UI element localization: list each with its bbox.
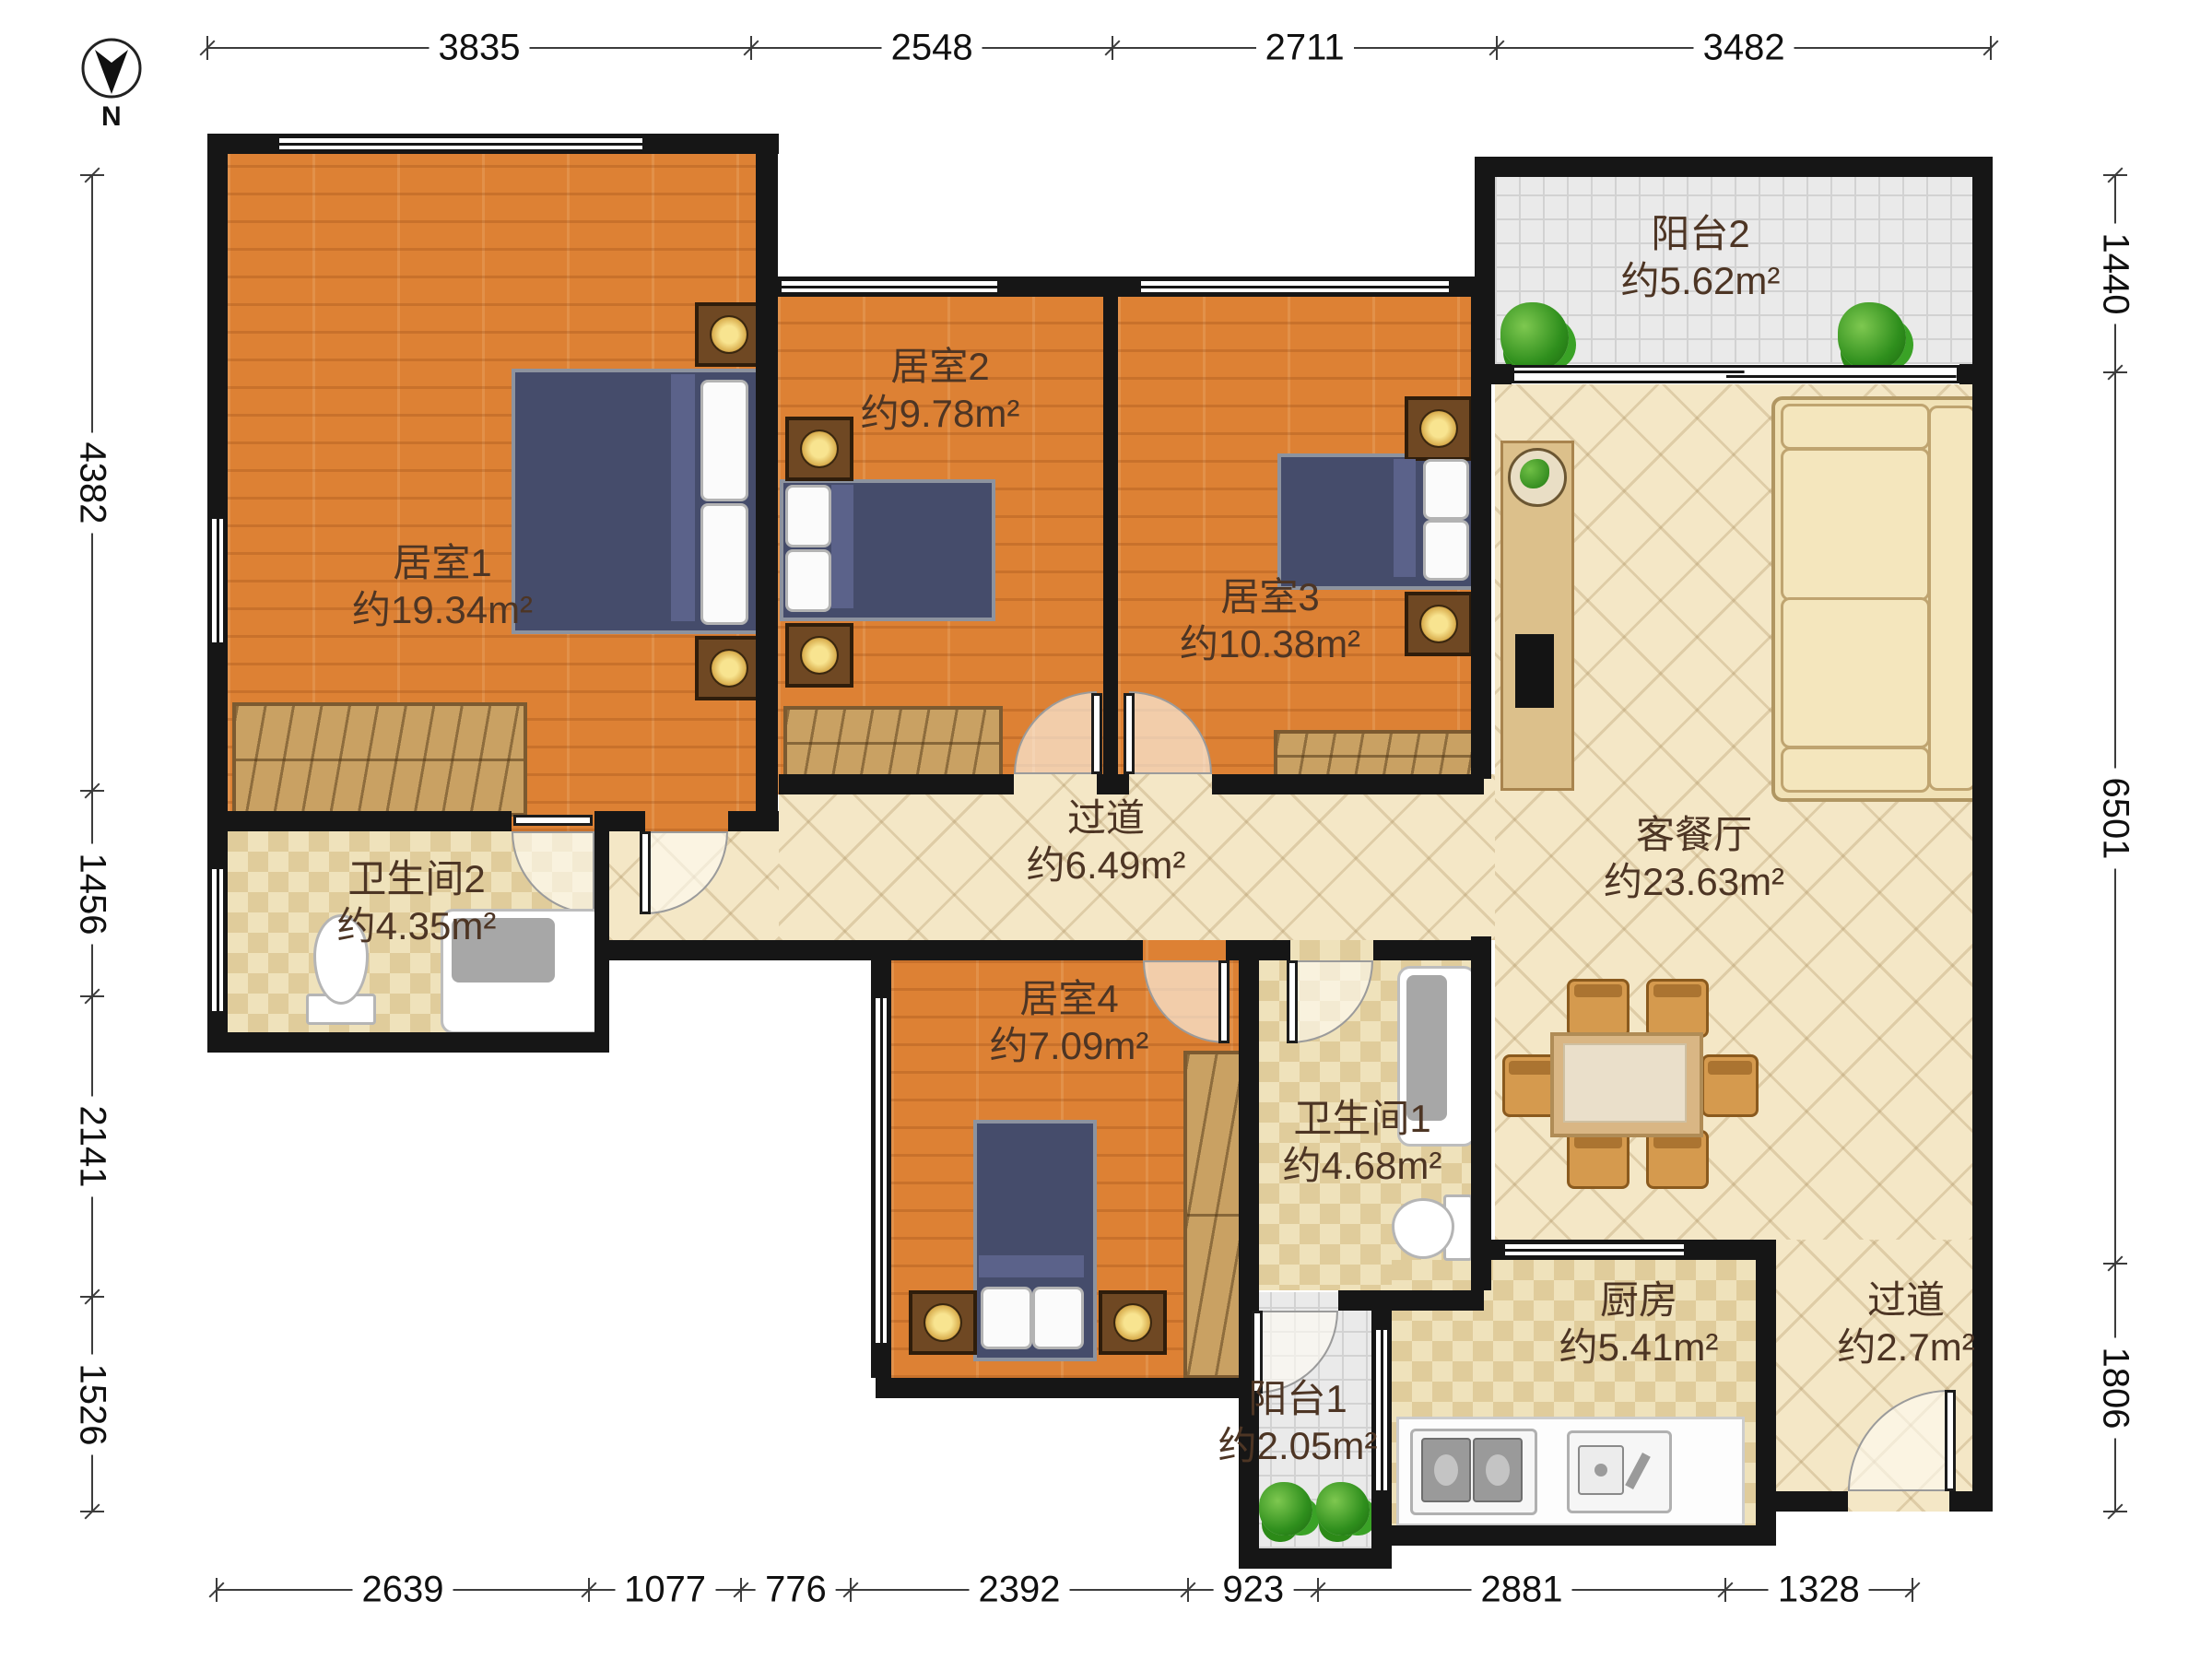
wall — [1972, 157, 1993, 1512]
tv-icon — [1515, 634, 1554, 708]
wall — [1373, 940, 1484, 960]
wall — [756, 134, 778, 831]
bedroom1-bed-fold — [671, 374, 695, 621]
cabinet-plant-icon — [1508, 448, 1567, 507]
bedroom3-pillow — [1423, 459, 1469, 520]
room-label-hallway: 过道 约6.49m² — [1027, 794, 1186, 888]
bedroom4-nightstand-lamp-icon — [909, 1290, 977, 1355]
balcony2-plant-icon — [1500, 302, 1569, 371]
balcony1-plant-icon — [1259, 1482, 1312, 1535]
room-label-bathroom1: 卫生间1 约4.68m² — [1283, 1095, 1442, 1189]
room-area: 约10.38m² — [1180, 620, 1360, 667]
floorplan-canvas: N — [0, 0, 2212, 1659]
bedroom4-pillow — [1032, 1287, 1084, 1349]
bedroom3-bed-fold — [1394, 459, 1416, 577]
room-name: 居室3 — [1180, 573, 1360, 620]
dimension-label: 1440 — [2095, 224, 2136, 324]
bedroom1-door-leaf — [640, 831, 651, 914]
room-area: 约4.35m² — [337, 902, 497, 949]
wall — [1338, 1290, 1484, 1311]
bedroom1-nightstand-lamp-icon — [695, 302, 763, 367]
dimension-label: 2639 — [353, 1570, 453, 1611]
bedroom2-bed-fold — [831, 485, 853, 608]
wall — [594, 811, 645, 831]
room-area: 约23.63m² — [1604, 858, 1784, 905]
bedroom1-window — [276, 135, 645, 152]
kitchen-cooktop-icon — [1578, 1445, 1624, 1495]
dining-chair — [1567, 1130, 1630, 1189]
dimension-label: 1806 — [2095, 1337, 2136, 1438]
dimension-label: 2141 — [72, 1096, 113, 1196]
wall — [1475, 157, 1495, 384]
room-area: 约9.78m² — [861, 390, 1020, 437]
room-label-bathroom2: 卫生间2 约4.35m² — [337, 855, 497, 949]
wall — [1475, 157, 1993, 177]
room-label-balcony2: 阳台2 约5.62m² — [1621, 210, 1781, 304]
bedroom4-nightstand-lamp-icon — [1099, 1290, 1167, 1355]
balcony2-sliding-door — [1512, 365, 1959, 383]
room-label-corridor: 过道 约2.7m² — [1837, 1277, 1974, 1371]
room-name: 卫生间1 — [1283, 1095, 1442, 1142]
room-area: 约2.7m² — [1837, 1324, 1974, 1371]
dimension-label: 1328 — [1769, 1570, 1869, 1611]
wall — [594, 831, 609, 1053]
room-name: 厨房 — [1559, 1277, 1719, 1324]
sofa-backrest — [1928, 406, 1976, 791]
dining-chair — [1646, 979, 1709, 1038]
room-label-balcony1: 阳台1 约2.05m² — [1218, 1375, 1378, 1469]
dining-chair — [1567, 979, 1630, 1038]
room-area: 约5.62m² — [1621, 257, 1781, 304]
dimension-label: 4382 — [72, 433, 113, 534]
dining-chair — [1701, 1054, 1759, 1117]
dining-chair — [1646, 1130, 1709, 1189]
bedroom1-pillow — [700, 503, 748, 625]
bedroom4-window — [873, 995, 889, 1346]
room-name: 阳台2 — [1621, 210, 1781, 257]
wall — [1212, 774, 1484, 794]
dimension-label: 2881 — [1472, 1570, 1572, 1611]
wall — [1471, 936, 1491, 1290]
bedroom3-pillow — [1423, 520, 1469, 581]
bedroom2-door-leaf — [1091, 693, 1102, 774]
bedroom1-wardrobe — [232, 702, 527, 817]
bedroom1-nightstand-lamp-icon — [695, 636, 763, 700]
wall — [1239, 1548, 1392, 1569]
bedroom3-nightstand-lamp-icon — [1405, 592, 1473, 656]
dimension-label: 6501 — [2095, 768, 2136, 868]
wall — [1392, 1525, 1776, 1546]
room-area: 约2.05m² — [1218, 1422, 1378, 1469]
room-name: 居室1 — [352, 539, 533, 586]
bedroom4-pillow — [981, 1287, 1032, 1349]
kitchen-sink-basin-icon — [1473, 1438, 1523, 1502]
wall — [779, 774, 1014, 794]
bedroom2-pillow — [785, 549, 831, 612]
wall — [1097, 774, 1129, 794]
bedroom1-side-window — [209, 516, 226, 645]
kitchen-window — [1502, 1241, 1687, 1258]
wall — [1765, 1491, 1848, 1512]
sofa-armrest — [1781, 404, 1930, 450]
kitchen-sink-basin-icon — [1421, 1438, 1471, 1502]
balcony2-plant-icon — [1838, 302, 1906, 371]
wall — [608, 940, 1143, 960]
wall — [207, 1032, 609, 1053]
bedroom3-window — [1138, 278, 1452, 295]
dimension-label: 1456 — [72, 843, 113, 944]
room-name: 过道 — [1027, 794, 1186, 841]
north-label: N — [101, 101, 122, 133]
room-area: 约5.41m² — [1559, 1324, 1719, 1371]
room-label-bedroom4: 居室4 约7.09m² — [990, 975, 1149, 1069]
bedroom2-window — [779, 278, 1000, 295]
bathroom2-door-leaf — [513, 815, 593, 826]
room-area: 约19.34m² — [352, 586, 533, 633]
dimension-label: 2392 — [969, 1570, 1069, 1611]
entry-door-leaf — [1945, 1390, 1956, 1491]
sofa-armrest — [1781, 747, 1930, 793]
room-area: 约6.49m² — [1027, 841, 1186, 888]
wall — [1495, 364, 1512, 384]
dimension-label: 1526 — [72, 1354, 113, 1454]
bedroom4-bed-fold — [979, 1255, 1084, 1277]
room-name: 居室2 — [861, 343, 1020, 390]
wall — [1756, 1240, 1776, 1525]
bedroom3-door-leaf — [1124, 693, 1135, 774]
room-area: 约7.09m² — [990, 1022, 1149, 1069]
bedroom2-nightstand-lamp-icon — [785, 417, 853, 481]
dimension-label: 1077 — [615, 1570, 715, 1611]
wall — [1959, 364, 1972, 384]
wall — [876, 1378, 1259, 1398]
north-compass-icon — [78, 35, 145, 101]
bedroom4-door-leaf — [1218, 960, 1230, 1043]
room-label-kitchen: 厨房 约5.41m² — [1559, 1277, 1719, 1371]
sofa-cushion — [1781, 597, 1930, 748]
wall — [1103, 297, 1118, 774]
dimension-label: 776 — [756, 1570, 836, 1611]
balcony1-plant-icon — [1316, 1482, 1370, 1535]
dimension-label: 923 — [1213, 1570, 1293, 1611]
bedroom2-wardrobe — [783, 706, 1003, 780]
floorplan: N — [0, 0, 2212, 1659]
dimension-label: 3482 — [1694, 28, 1794, 69]
wall — [207, 811, 512, 831]
bathroom2-window — [209, 866, 226, 1014]
room-name: 阳台1 — [1218, 1375, 1378, 1422]
room-area: 约4.68m² — [1283, 1142, 1442, 1189]
room-name: 过道 — [1837, 1277, 1974, 1324]
bedroom4-wardrobe — [1183, 1051, 1244, 1379]
bedroom2-pillow — [785, 485, 831, 547]
bedroom3-nightstand-lamp-icon — [1405, 396, 1473, 461]
room-name: 客餐厅 — [1604, 811, 1784, 858]
room-label-living: 客餐厅 约23.63m² — [1604, 811, 1784, 905]
room-label-bedroom3: 居室3 约10.38m² — [1180, 573, 1360, 667]
dimension-label: 2711 — [1256, 28, 1354, 69]
room-name: 居室4 — [990, 975, 1149, 1022]
dining-table-top — [1563, 1043, 1687, 1123]
bedroom2-nightstand-lamp-icon — [785, 623, 853, 688]
bathroom1-door-leaf — [1287, 960, 1298, 1043]
sofa-cushion — [1781, 448, 1930, 601]
dimension-label: 2548 — [882, 28, 982, 69]
bedroom1-pillow — [700, 380, 748, 501]
dimension-label: 3835 — [429, 28, 530, 69]
wall — [1226, 940, 1290, 960]
room-label-bedroom2: 居室2 约9.78m² — [861, 343, 1020, 437]
room-label-bedroom1: 居室1 约19.34m² — [352, 539, 533, 633]
room-name: 卫生间2 — [337, 855, 497, 902]
